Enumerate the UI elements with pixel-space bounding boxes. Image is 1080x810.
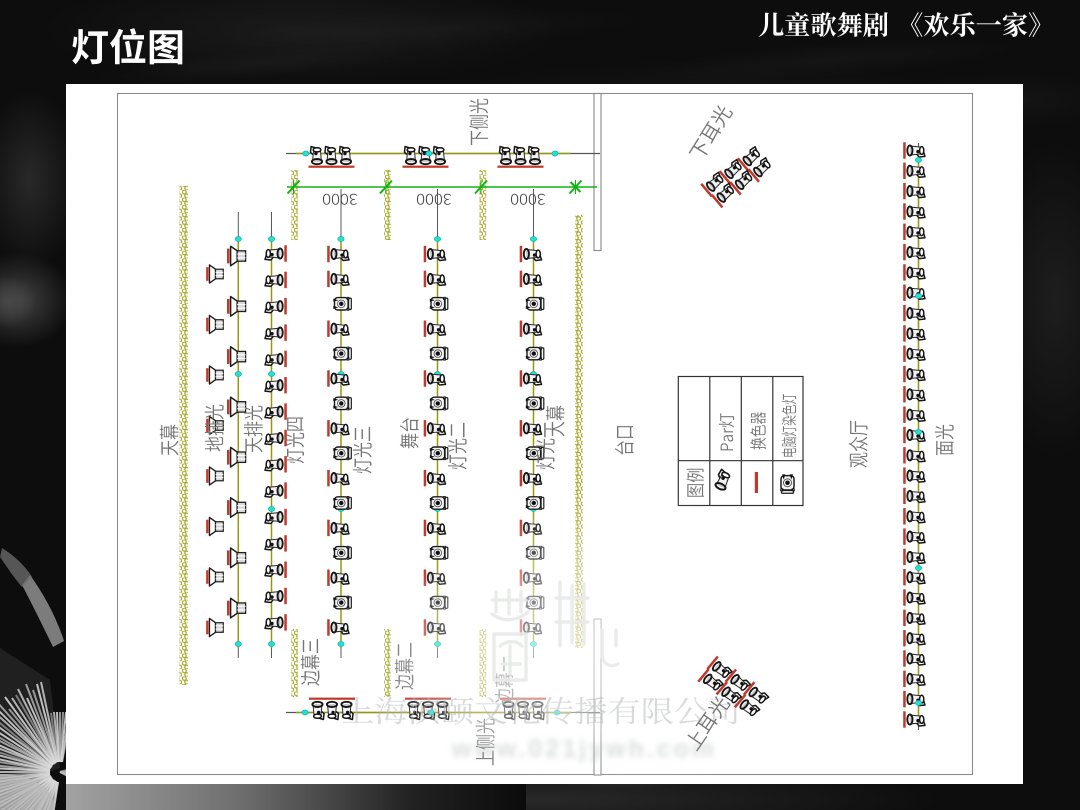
svg-text:www.021jywh.com: www.021jywh.com <box>451 735 717 763</box>
